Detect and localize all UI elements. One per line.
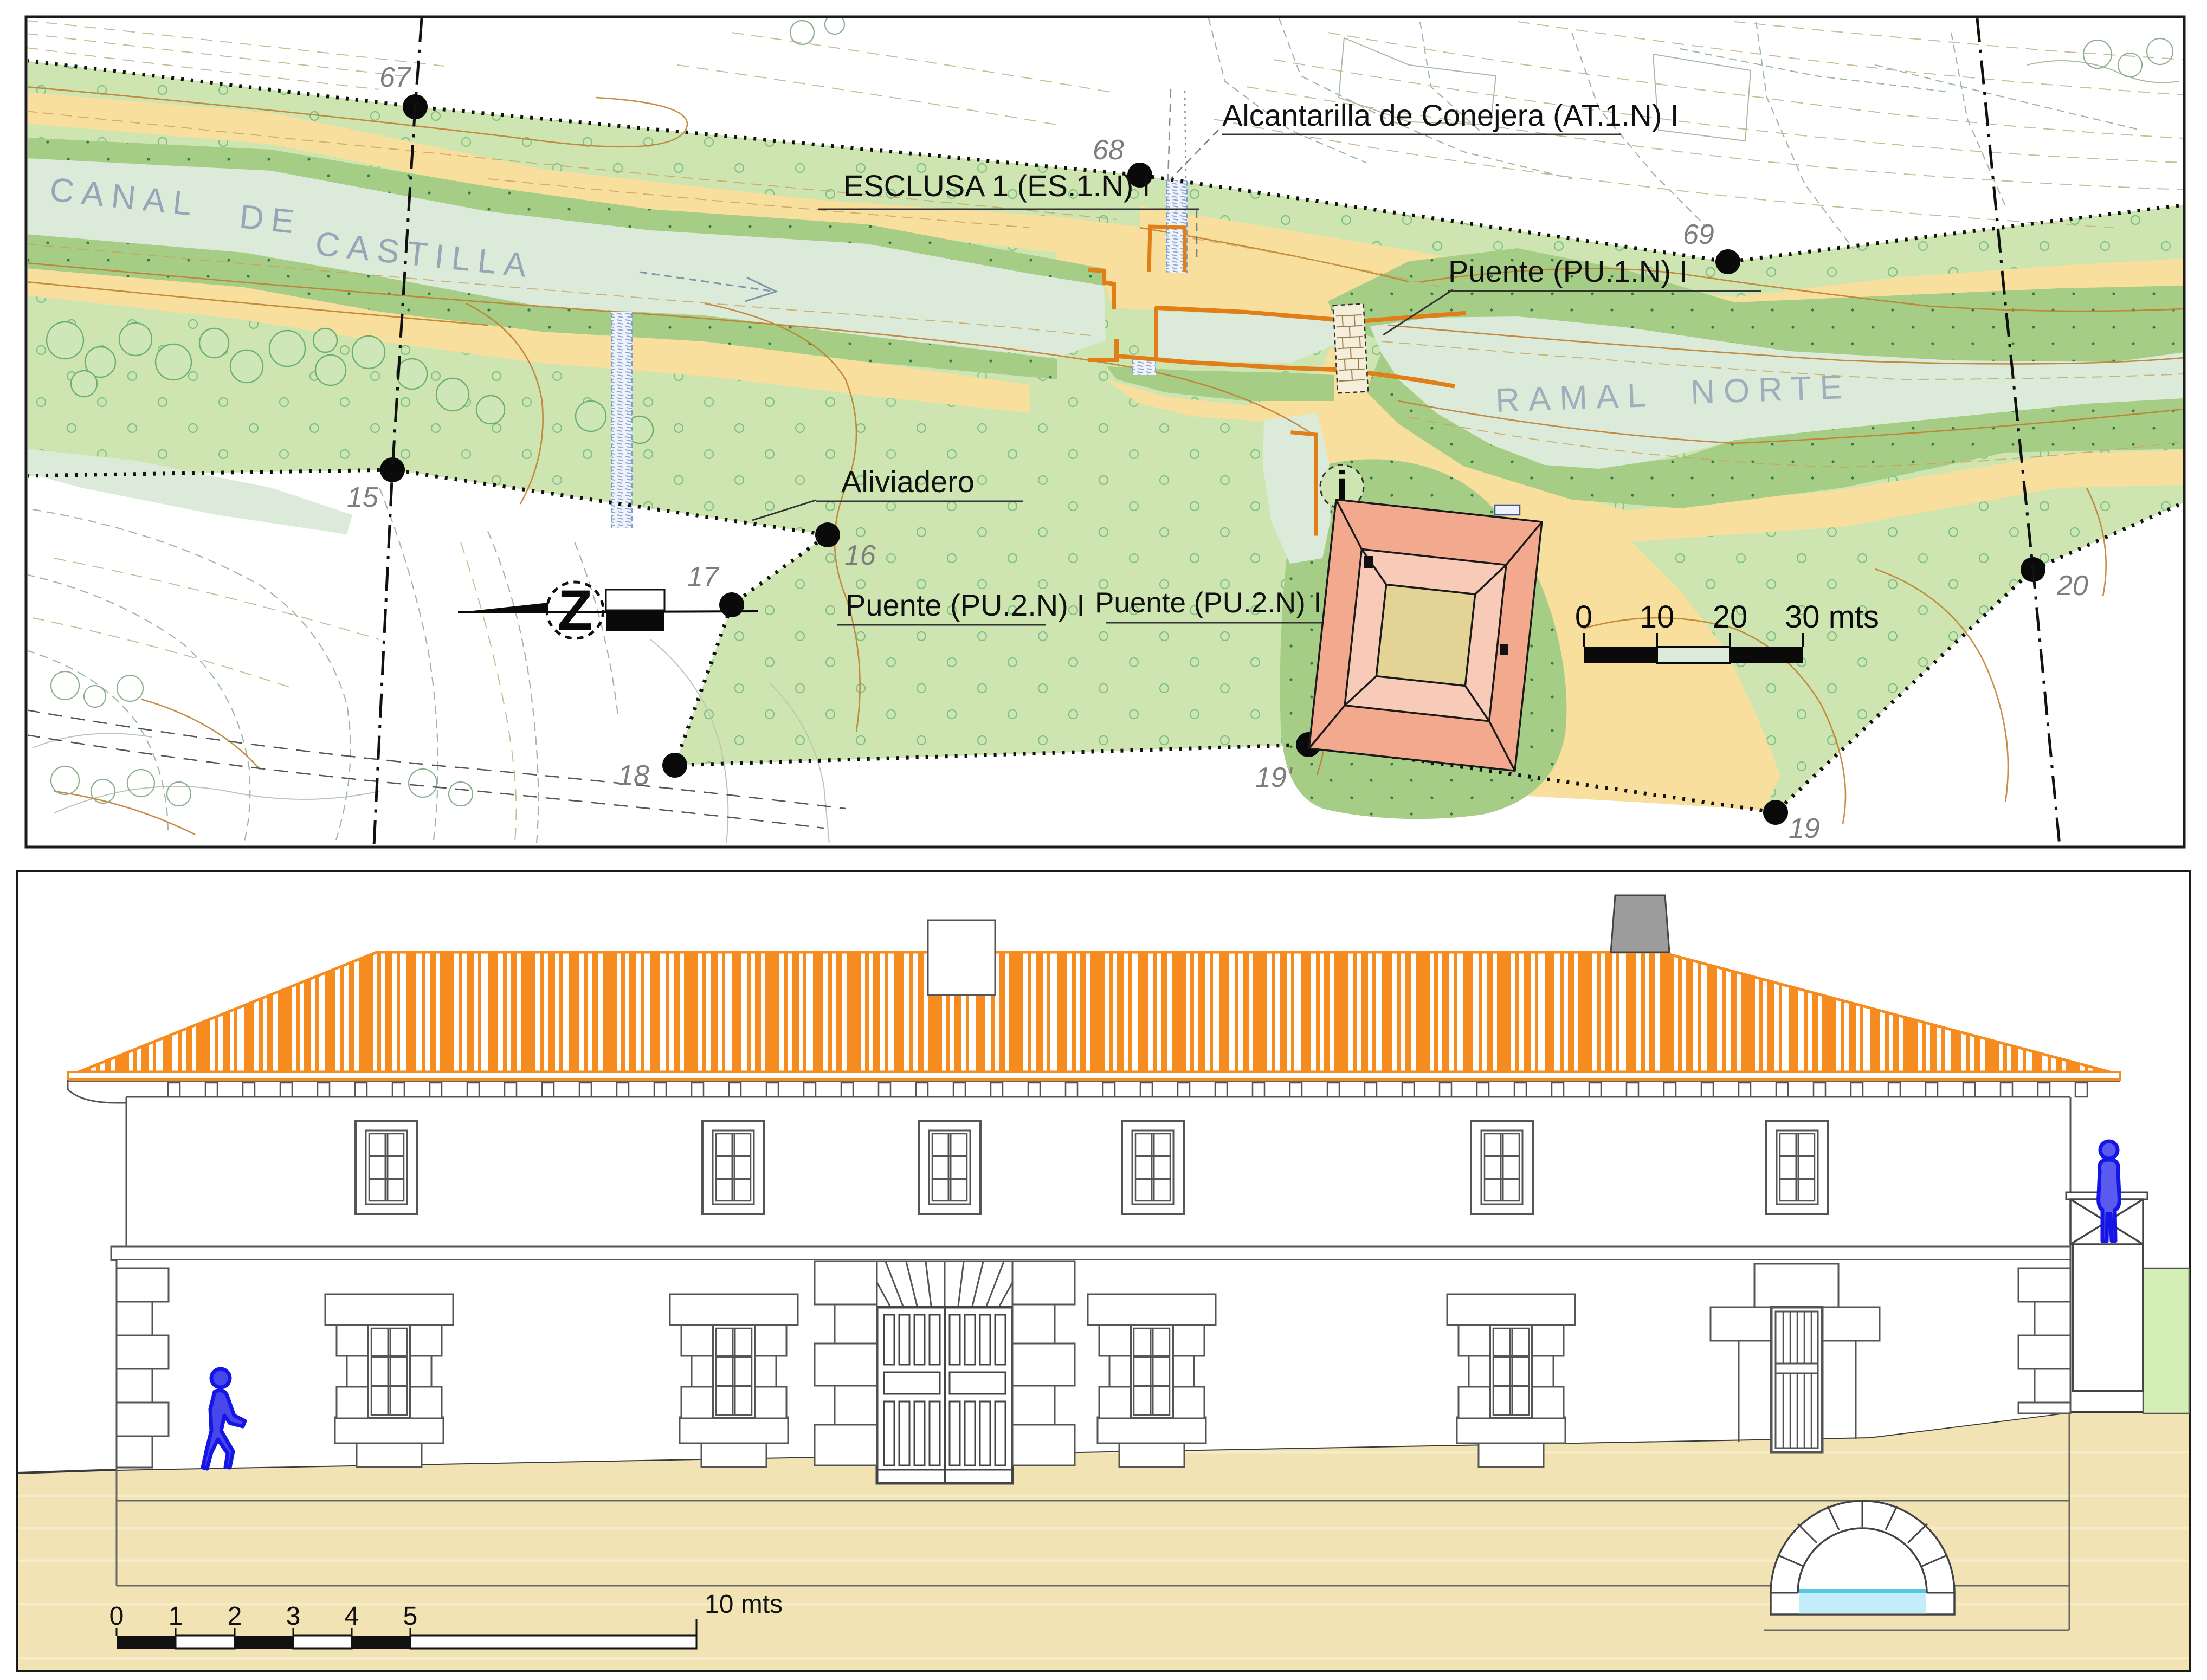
svg-text:Puente (PU.2.N) I: Puente (PU.2.N) I — [846, 588, 1085, 622]
svg-text:0: 0 — [1575, 599, 1592, 635]
svg-text:68: 68 — [1093, 134, 1124, 166]
svg-text:Aliviadero: Aliviadero — [841, 464, 975, 499]
svg-text:NORTE: NORTE — [1690, 369, 1851, 411]
svg-text:15: 15 — [347, 482, 379, 513]
svg-text:0: 0 — [109, 1602, 124, 1631]
svg-text:18: 18 — [618, 760, 649, 791]
svg-text:RAMAL: RAMAL — [1495, 377, 1655, 419]
svg-text:3: 3 — [286, 1602, 301, 1631]
svg-text:DE: DE — [238, 198, 304, 242]
svg-text:30 mts: 30 mts — [1785, 599, 1879, 635]
svg-text:2: 2 — [228, 1602, 242, 1631]
svg-text:4: 4 — [345, 1602, 359, 1631]
svg-text:10 mts: 10 mts — [705, 1590, 783, 1619]
svg-text:19: 19 — [1789, 813, 1820, 844]
svg-text:Puente (PU.1.N) I: Puente (PU.1.N) I — [1448, 254, 1688, 288]
svg-text:5: 5 — [403, 1602, 418, 1631]
svg-text:1: 1 — [169, 1602, 183, 1631]
svg-text:16: 16 — [844, 540, 876, 571]
svg-text:Alcantarilla de Conejera (AT.1: Alcantarilla de Conejera (AT.1.N) I — [1222, 98, 1679, 132]
svg-text:ESCLUSA 1 (ES.1.N) I: ESCLUSA 1 (ES.1.N) I — [843, 169, 1150, 203]
svg-text:Puente (PU.2.N) I: Puente (PU.2.N) I — [1095, 587, 1321, 619]
svg-text:Z: Z — [558, 579, 592, 642]
svg-text:20: 20 — [1713, 599, 1748, 635]
svg-text:69: 69 — [1683, 219, 1714, 250]
svg-text:17: 17 — [687, 561, 720, 593]
svg-text:19': 19' — [1255, 762, 1293, 793]
svg-text:67: 67 — [379, 62, 412, 93]
svg-text:10: 10 — [1640, 599, 1675, 635]
svg-text:20: 20 — [2056, 570, 2088, 602]
